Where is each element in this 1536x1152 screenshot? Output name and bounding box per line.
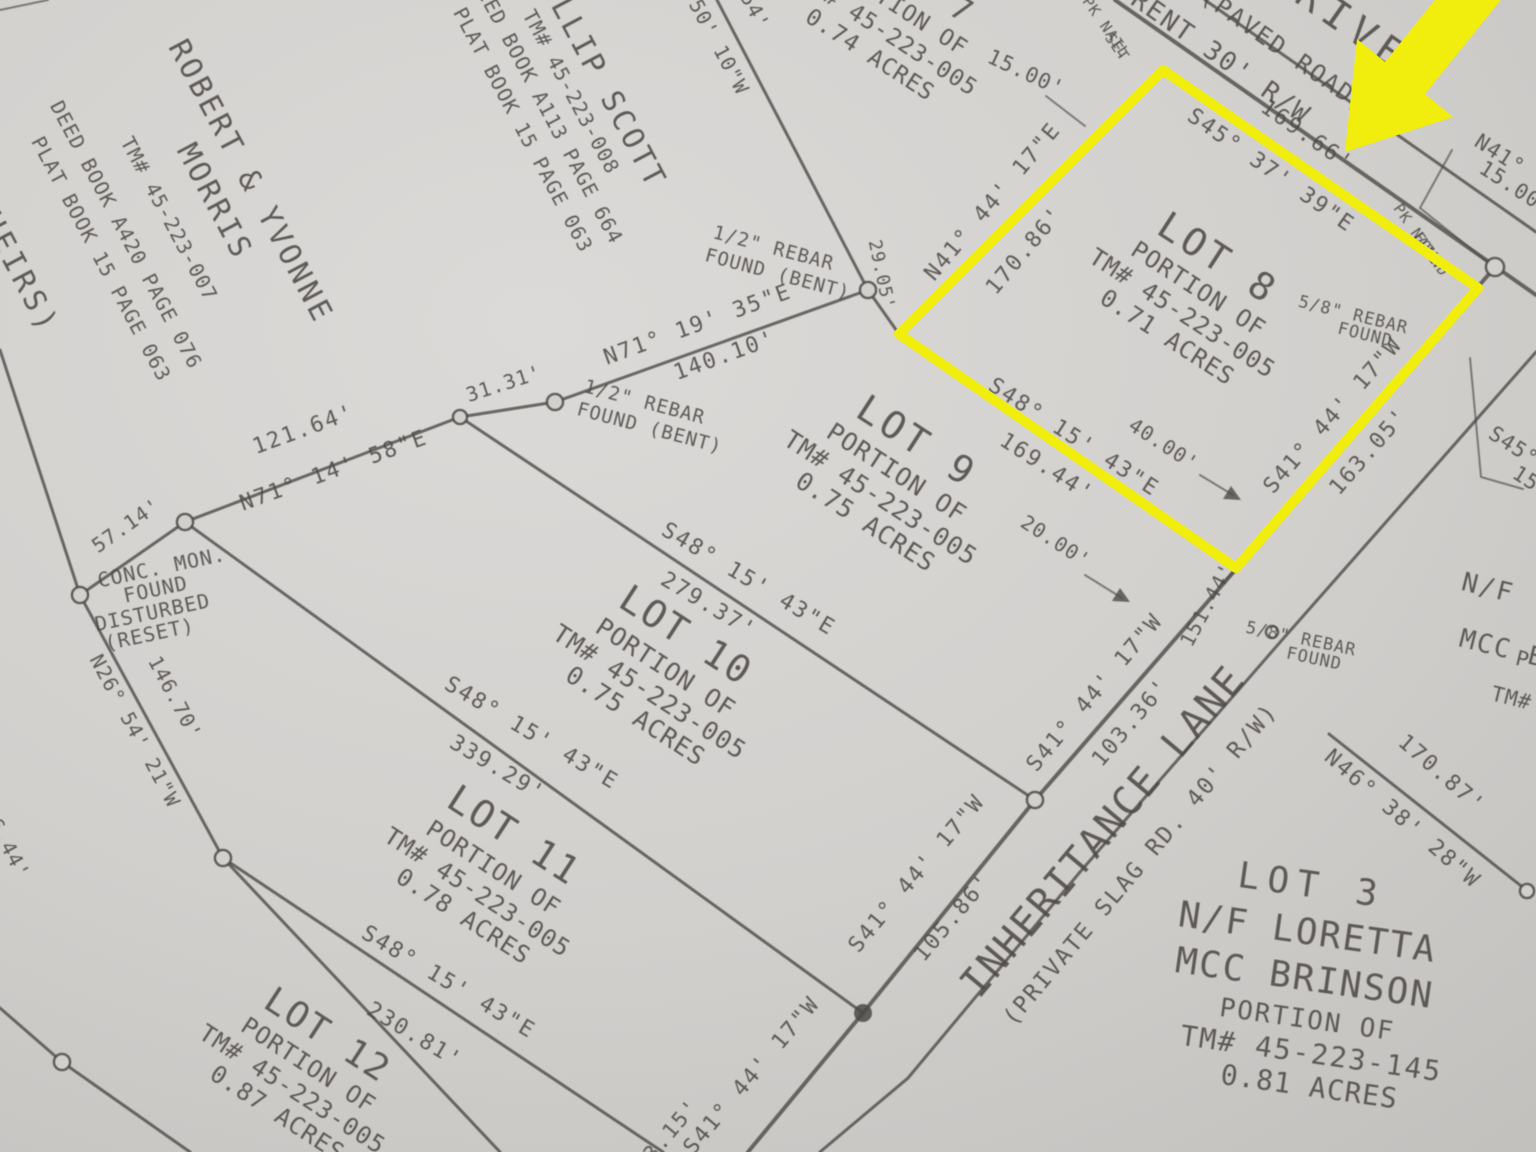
vertex-12164 [177, 514, 193, 530]
vertex-3131 [453, 410, 467, 424]
vertex-concmon [72, 587, 88, 603]
vertex-monument-lane [854, 1004, 872, 1022]
vertex-14670 [215, 850, 231, 866]
survey-plat-svg: (HEIRS)ROBERT & YVONNEMORRISTM# 45-223-0… [0, 0, 1536, 1152]
plat-map-photo: (HEIRS)ROBERT & YVONNEMORRISTM# 45-223-0… [0, 0, 1536, 1152]
vertex-rebar-low [547, 394, 563, 410]
vertex-southwest [54, 1054, 70, 1070]
vertex-lot3 [1520, 884, 1534, 898]
vertex-lane-1 [1027, 792, 1043, 808]
vertex-pknail-found [1486, 258, 1504, 276]
